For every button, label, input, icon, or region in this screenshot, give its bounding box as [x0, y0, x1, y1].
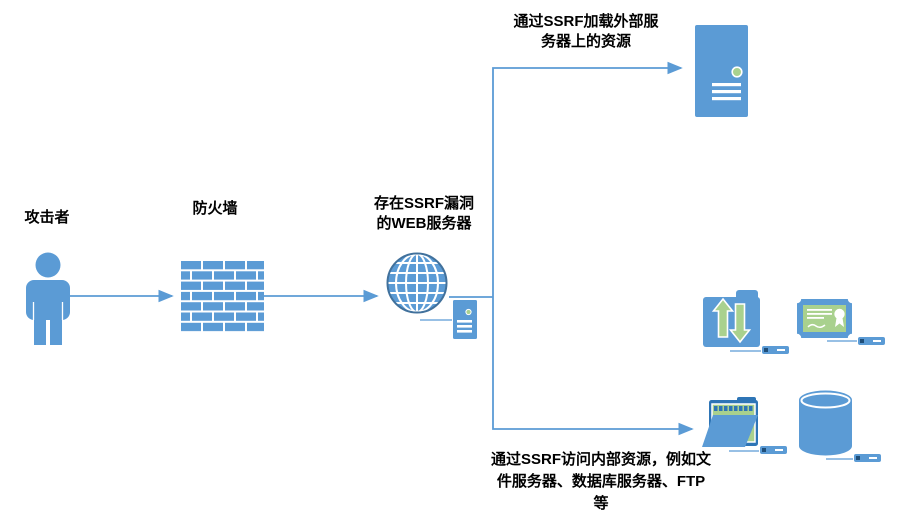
rack-unit-chip: [762, 448, 766, 452]
external-server-caption: 通过SSRF加载外部服 务器上的资源: [494, 12, 678, 52]
external-caption-line1: 通过SSRF加载外部服: [494, 12, 678, 32]
brick-wall-icon: [181, 261, 264, 333]
rack-unit-icon: [858, 337, 885, 345]
internal-resources-caption: 通过SSRF访问内部资源，例如文 件服务器、数据库服务器、FTP 等: [455, 449, 747, 515]
firewall-label: 防火墙: [173, 199, 257, 219]
attacker-label: 攻击者: [4, 208, 90, 228]
rack-unit-chip: [856, 456, 860, 460]
rack-unit-chip: [764, 348, 768, 352]
rack-unit-chip: [860, 339, 864, 343]
internal-caption-line1: 通过SSRF访问内部资源，例如文: [455, 449, 747, 471]
arrow-to-internal-resources: [493, 297, 692, 429]
rack-unit-dash: [775, 449, 783, 451]
globe-icon: [386, 252, 448, 314]
person-icon: [26, 252, 70, 346]
certificate-icon: [797, 299, 852, 338]
internal-caption-line2: 件服务器、数据库服务器、FTP: [455, 471, 747, 493]
rack-unit-icon: [760, 446, 787, 454]
open-folder-icon: [700, 396, 761, 450]
web-server-label: 存在SSRF漏洞 的WEB服务器: [354, 194, 494, 234]
server-tower-icon: [695, 25, 748, 117]
rack-unit-dash: [777, 349, 785, 351]
internal-caption-line3: 等: [455, 493, 747, 515]
arrow-to-external-server: [493, 68, 681, 297]
web-server-label-line2: 的WEB服务器: [354, 214, 494, 234]
rack-unit-dash: [869, 457, 877, 459]
external-caption-line2: 务器上的资源: [494, 32, 678, 52]
ssrf-attack-diagram: 攻击者 防火墙 存在SSRF漏洞 的WEB服: [0, 0, 903, 529]
ftp-transfer-folder-icon: [703, 290, 760, 347]
database-cylinder-icon: [798, 390, 853, 456]
web-server-label-line1: 存在SSRF漏洞: [354, 194, 494, 214]
rack-unit-icon: [762, 346, 789, 354]
mini-server-icon: [453, 300, 477, 339]
rack-unit-dash: [873, 340, 881, 342]
rack-unit-icon: [854, 454, 881, 462]
